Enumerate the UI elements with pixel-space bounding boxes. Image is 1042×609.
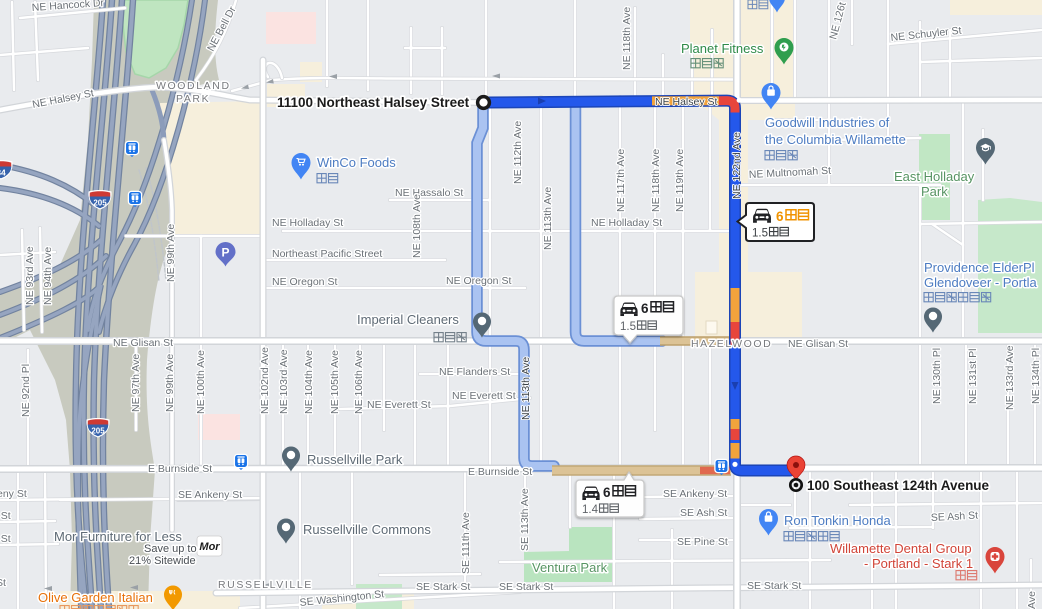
svg-text:NE 112th Ave: NE 112th Ave — [512, 121, 524, 184]
svg-text:Ron Tonkin Honda: Ron Tonkin Honda — [784, 513, 891, 528]
svg-text:Save up to: Save up to — [144, 543, 197, 555]
svg-text:NE 97th Ave: NE 97th Ave — [130, 354, 142, 412]
svg-text:e St: e St — [0, 533, 11, 545]
svg-text:NE 131st Pl: NE 131st Pl — [967, 349, 979, 404]
svg-text:SE Stark St: SE Stark St — [499, 581, 553, 593]
svg-text:NE 105th Ave: NE 105th Ave — [329, 350, 341, 414]
svg-text:WinCo Foods: WinCo Foods — [317, 155, 396, 170]
svg-text:NE Glisan St: NE Glisan St — [113, 337, 173, 349]
svg-text:NE 134th Pl: NE 134th Pl — [1030, 348, 1042, 404]
svg-text:Glendoveer - Portla: Glendoveer - Portla — [924, 275, 1037, 290]
svg-text:Russellville Park: Russellville Park — [307, 452, 403, 467]
svg-text:Mor: Mor — [199, 541, 220, 553]
svg-text:Imperial Cleaners: Imperial Cleaners — [357, 312, 459, 327]
svg-text:NE Everett St: NE Everett St — [452, 390, 516, 402]
svg-text:Olive Garden Italian: Olive Garden Italian — [38, 590, 153, 605]
svg-text:St: St — [0, 577, 6, 589]
svg-text:East Holladay: East Holladay — [894, 169, 975, 184]
svg-text:NE Oregon St: NE Oregon St — [446, 275, 511, 287]
svg-text:n St: n St — [0, 510, 11, 522]
svg-text:NE 94th Ave: NE 94th Ave — [42, 247, 54, 305]
svg-text:E Burnside St: E Burnside St — [148, 463, 212, 475]
svg-text:SE Stark St: SE Stark St — [747, 580, 801, 592]
svg-text:E Burnside St: E Burnside St — [468, 466, 532, 478]
svg-text:NE Holladay St: NE Holladay St — [591, 217, 662, 229]
svg-text:NE 99th Ave: NE 99th Ave — [165, 224, 177, 282]
svg-text:NE 117th Ave: NE 117th Ave — [615, 149, 627, 212]
svg-text:6: 6 — [641, 301, 649, 316]
svg-text:NE Flanders St: NE Flanders St — [439, 366, 510, 378]
svg-text:84: 84 — [0, 168, 6, 178]
svg-text:Providence ElderPl: Providence ElderPl — [924, 260, 1035, 275]
svg-text:1.5: 1.5 — [620, 321, 636, 333]
svg-text:NE 93rd Ave: NE 93rd Ave — [24, 246, 36, 305]
svg-text:NE Hassalo St: NE Hassalo St — [395, 187, 463, 199]
svg-text:Russellville Commons: Russellville Commons — [303, 522, 431, 537]
svg-text:SE Ash St: SE Ash St — [680, 507, 727, 519]
svg-text:NE Everett St: NE Everett St — [367, 399, 431, 411]
svg-text:NE 113th Ave: NE 113th Ave — [542, 187, 554, 250]
svg-text:NE 113th Ave: NE 113th Ave — [520, 357, 532, 420]
svg-text:PARK: PARK — [176, 93, 210, 105]
svg-text:HAZELWOOD: HAZELWOOD — [691, 338, 772, 350]
svg-text:SE Ankeny St: SE Ankeny St — [178, 489, 242, 501]
svg-text:1.5: 1.5 — [752, 228, 768, 240]
svg-text:NE 100th Ave: NE 100th Ave — [195, 350, 207, 414]
svg-text:RUSSELLVILLE: RUSSELLVILLE — [218, 579, 313, 591]
svg-text:SE Stark St: SE Stark St — [416, 581, 470, 593]
svg-text:the Columbia Willamette: the Columbia Willamette — [765, 132, 906, 147]
svg-text:NE 102nd Ave: NE 102nd Ave — [259, 347, 271, 414]
svg-text:21% Sitewide: 21% Sitewide — [129, 555, 196, 567]
svg-text:WOODLAND: WOODLAND — [156, 80, 231, 92]
svg-text:1.4: 1.4 — [582, 504, 599, 516]
svg-text:NE Glisan St: NE Glisan St — [788, 338, 848, 350]
svg-text:NE 106th Ave: NE 106th Ave — [353, 350, 365, 414]
svg-text:NE 130th Pl: NE 130th Pl — [931, 348, 943, 404]
svg-text:Willamette Dental Group: Willamette Dental Group — [830, 541, 972, 556]
svg-text:NE 103rd Ave: NE 103rd Ave — [278, 349, 290, 414]
svg-text:SE Ash St: SE Ash St — [931, 510, 979, 524]
svg-text:NE 104th Ave: NE 104th Ave — [303, 350, 315, 414]
svg-text:NE 99th Ave: NE 99th Ave — [164, 354, 176, 412]
svg-text:6: 6 — [776, 209, 784, 224]
svg-text:Northeast Pacific Street: Northeast Pacific Street — [272, 248, 382, 260]
svg-text:11100 Northeast Halsey Street: 11100 Northeast Halsey Street — [277, 95, 470, 110]
svg-text:Mor Furniture for Less: Mor Furniture for Less — [54, 529, 182, 544]
svg-text:SE 111th Ave: SE 111th Ave — [460, 512, 472, 574]
svg-text:NE 118th Ave: NE 118th Ave — [621, 7, 633, 70]
svg-text:NE 92nd Pl: NE 92nd Pl — [20, 364, 32, 417]
svg-text:NE 108th Ave: NE 108th Ave — [411, 194, 423, 258]
svg-text:NE Halsey St: NE Halsey St — [655, 96, 718, 108]
svg-text:SE Pine St: SE Pine St — [677, 536, 728, 548]
svg-text:Ventura Park: Ventura Park — [532, 560, 608, 575]
svg-text:NE 119th Ave: NE 119th Ave — [674, 149, 686, 212]
svg-text:NE Oregon St: NE Oregon St — [272, 276, 337, 288]
svg-text:NE 133rd Ave: NE 133rd Ave — [1004, 345, 1016, 410]
svg-text:NE 118th Ave: NE 118th Ave — [650, 149, 662, 212]
svg-text:Park: Park — [921, 184, 948, 199]
svg-text:eny St: eny St — [0, 488, 27, 500]
svg-text:6: 6 — [603, 485, 611, 500]
svg-text:- Portland - Stark 1: - Portland - Stark 1 — [864, 556, 973, 571]
svg-text:Goodwill Industries of: Goodwill Industries of — [765, 115, 890, 130]
svg-text:NE 122nd Ave: NE 122nd Ave — [731, 132, 743, 199]
svg-text:P: P — [221, 246, 229, 260]
svg-text:SE 113th Ave: SE 113th Ave — [519, 488, 531, 551]
svg-text:NE Holladay St: NE Holladay St — [272, 217, 343, 229]
svg-text:Ave: Ave — [1026, 591, 1038, 609]
svg-text:SE Ankeny St: SE Ankeny St — [663, 488, 727, 500]
svg-text:100 Southeast 124th Avenue: 100 Southeast 124th Avenue — [807, 478, 990, 493]
svg-text:Planet Fitness: Planet Fitness — [681, 41, 764, 56]
